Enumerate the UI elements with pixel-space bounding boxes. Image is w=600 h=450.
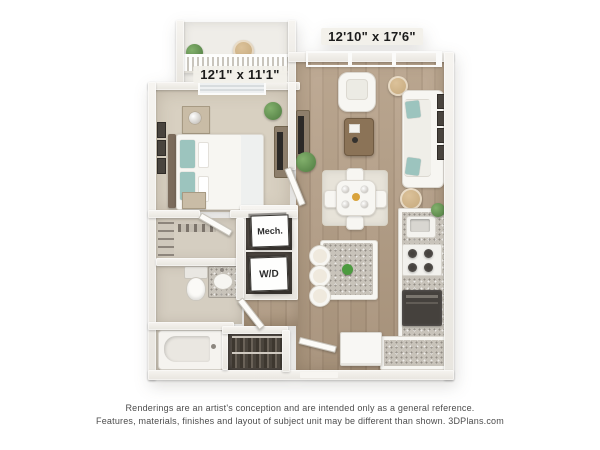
bedroom-plant <box>264 102 282 120</box>
tub-faucet <box>211 344 216 349</box>
living-room-dimensions-label: 12'10" x 17'6" <box>321 28 423 45</box>
bed-pillow-white <box>198 142 209 168</box>
vanity-sink <box>213 273 233 290</box>
linen-bath-wall <box>156 258 242 266</box>
bedroom-bottom-wall-left <box>148 210 200 218</box>
tv <box>298 116 304 154</box>
stove-burner <box>424 263 433 272</box>
stove-burner <box>424 249 433 258</box>
dining-chair <box>346 215 364 230</box>
entry-closet-right-wall <box>282 330 290 372</box>
bedroom-bench <box>182 192 206 209</box>
bathroom-right-wall <box>236 218 244 300</box>
side-table <box>400 188 422 210</box>
bed-headboard <box>168 134 176 208</box>
bedroom-dimensions-label: 12'1" x 11'1" <box>193 66 287 83</box>
coffee-table-decor <box>352 137 358 143</box>
bedroom-window <box>198 81 266 95</box>
sink-faucet <box>220 268 224 272</box>
coffee-table-book <box>349 124 360 133</box>
sofa-pillow-teal <box>405 100 421 119</box>
stove-burner <box>408 249 417 258</box>
apartment-unit-plan: 12'10" x 17'6" 12'1" x 11'1" Mech. W/D <box>0 0 600 450</box>
sink-basin <box>410 219 430 232</box>
balcony-wall-left <box>176 20 184 86</box>
tub-closet-wall <box>222 330 228 370</box>
wall-art <box>157 140 166 156</box>
sofa-pillow-teal <box>405 157 421 176</box>
bar-stool <box>310 286 330 306</box>
disclaimer: Renderings are an artist's conception an… <box>0 402 600 428</box>
entry-threshold <box>300 372 338 378</box>
washer-dryer-label: W/D <box>249 256 288 291</box>
right-exterior-wall <box>444 52 454 380</box>
mech-closet-label: Mech. <box>250 214 289 247</box>
floor-plan-rendering: 12'10" x 17'6" 12'1" x 11'1" Mech. W/D R… <box>0 0 600 450</box>
oven-trim <box>406 302 438 304</box>
bar-stool <box>310 246 330 266</box>
kitchen-countertop-bottom <box>384 340 444 366</box>
closet-hanging-clothes <box>232 352 282 368</box>
entry-closet-top-wall <box>222 326 288 334</box>
living-room-window <box>306 51 442 67</box>
place-setting <box>342 186 349 193</box>
wall-art <box>157 122 166 138</box>
closet-hanging-clothes <box>232 336 282 352</box>
bar-stool <box>310 266 330 286</box>
toilet-bowl <box>186 277 206 301</box>
place-setting <box>361 186 368 193</box>
refrigerator <box>340 332 382 366</box>
wall-art <box>157 158 166 174</box>
disclaimer-line1: Renderings are an artist's conception an… <box>0 402 600 415</box>
kitchen-plant <box>431 203 445 217</box>
oven-handle <box>406 295 438 298</box>
disclaimer-line2: Features, materials, finishes and layout… <box>0 415 600 428</box>
bathtub-basin <box>164 336 210 362</box>
stove-burner <box>408 263 417 272</box>
table-centerpiece <box>352 193 360 201</box>
stove-cooktop <box>402 244 442 276</box>
armchair-cushion <box>346 79 368 100</box>
bedroom-living-wall <box>288 82 296 170</box>
left-exterior-wall <box>148 82 156 380</box>
bedroom-tv <box>277 132 283 170</box>
place-setting <box>361 201 368 208</box>
living-room-plant <box>296 152 316 172</box>
linen-shelves <box>158 222 174 256</box>
fruit-bowl <box>342 264 353 275</box>
table-lamp <box>189 112 201 124</box>
place-setting <box>342 201 349 208</box>
bed-pillow-teal <box>180 140 195 168</box>
